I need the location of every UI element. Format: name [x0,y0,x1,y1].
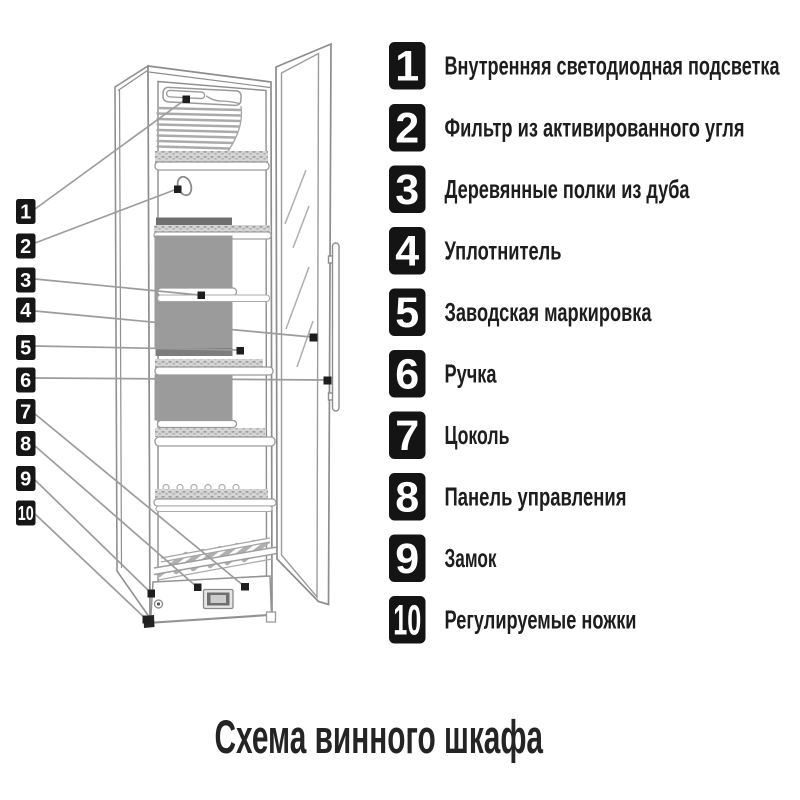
svg-text:2: 2 [20,236,31,258]
svg-text:2: 2 [395,105,419,153]
svg-text:Цоколь: Цоколь [445,420,510,450]
svg-text:Деревянные полки из дуба: Деревянные полки из дуба [445,174,690,204]
svg-text:Заводская маркировка: Заводская маркировка [445,297,652,327]
svg-text:Уплотнитель: Уплотнитель [445,236,562,266]
svg-text:7: 7 [395,412,419,460]
svg-text:Фильтр из активированного угля: Фильтр из активированного угля [445,113,745,143]
svg-text:Панель управления: Панель управления [445,482,627,512]
svg-text:Внутренняя светодиодная подсве: Внутренняя светодиодная подсветка [445,51,780,81]
svg-text:Ручка: Ручка [445,359,497,389]
svg-text:Схема винного шкафа: Схема винного шкафа [215,710,544,763]
svg-text:10: 10 [18,503,34,525]
svg-text:10: 10 [393,597,421,645]
svg-text:6: 6 [20,370,31,392]
svg-text:6: 6 [395,351,419,399]
svg-text:3: 3 [395,166,419,214]
svg-text:8: 8 [20,434,31,456]
svg-text:9: 9 [395,535,419,583]
svg-text:7: 7 [20,402,31,424]
svg-text:8: 8 [395,474,419,522]
svg-text:1: 1 [395,43,419,91]
svg-text:3: 3 [20,270,31,292]
svg-text:9: 9 [20,469,31,491]
svg-text:Замок: Замок [445,543,498,573]
svg-text:5: 5 [20,338,31,360]
svg-text:4: 4 [20,300,32,322]
svg-text:5: 5 [395,289,419,337]
svg-text:4: 4 [395,228,419,276]
svg-text:Регулируемые ножки: Регулируемые ножки [445,605,637,635]
svg-text:1: 1 [20,202,31,224]
